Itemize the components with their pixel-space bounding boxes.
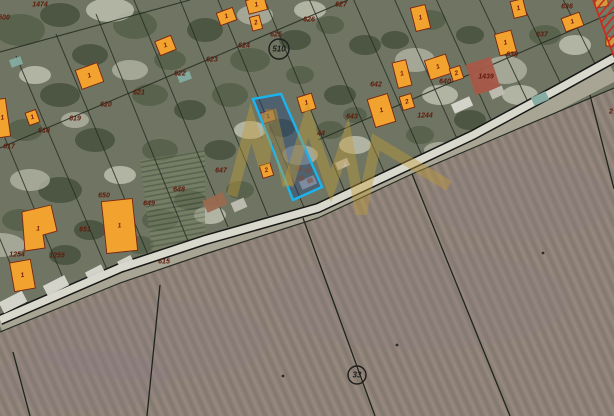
bare-yard-patch	[10, 169, 50, 191]
field-speck	[282, 375, 285, 378]
parcel-number: 617	[3, 144, 16, 151]
parcel-number: 624	[238, 43, 250, 50]
bare-yard-patch	[112, 60, 148, 80]
parcel-number: 647	[215, 168, 228, 175]
cadastral-map-viewport[interactable]: 1111112121121112111111147450061761861962…	[0, 0, 614, 416]
parcel-number: 643	[346, 114, 358, 121]
parcel-number: 625	[270, 32, 282, 39]
tree-blob	[174, 100, 206, 120]
tree-blob	[72, 44, 108, 66]
parcel-number: 623	[206, 57, 218, 64]
field-tint-patch	[270, 250, 570, 350]
parcel-number: 640	[439, 79, 451, 86]
field-tint-patch	[430, 160, 610, 240]
parcel-number: 649	[143, 201, 155, 208]
parcel-number: 2	[608, 109, 613, 116]
parcel-number: 626	[303, 17, 315, 24]
building-highlighted: 1	[101, 199, 137, 254]
tree-blob	[456, 26, 484, 44]
building-number-label: 1	[36, 226, 40, 233]
bare-yard-patch	[104, 166, 136, 184]
parcel-number: 638	[506, 52, 518, 59]
tree-blob	[204, 140, 236, 160]
parcel-number: 637	[536, 32, 549, 39]
parcel-number: 500	[0, 15, 10, 22]
tree-blob	[75, 128, 115, 152]
parcel-number: 622	[174, 71, 186, 78]
tree-blob	[381, 31, 409, 49]
field-speck	[542, 252, 545, 255]
aerial-map-canvas[interactable]: 1111112121121112111111147450061761861962…	[0, 0, 614, 416]
parcel-number: 1244	[417, 113, 433, 120]
tree-blob	[286, 66, 314, 84]
parcel-number: 618	[38, 128, 50, 135]
parcel-number: 1439	[478, 74, 494, 81]
building-highlighted: 1	[10, 259, 36, 291]
tree-blob	[230, 48, 270, 72]
parcel-number: 615	[158, 259, 170, 266]
parcel-number: 620	[100, 102, 112, 109]
bare-yard-patch	[559, 35, 591, 55]
parcel-number: 651	[79, 227, 91, 234]
tree-blob	[212, 83, 248, 107]
survey-number-label: 33	[353, 371, 362, 380]
parcel-number: 1254	[9, 252, 25, 259]
parcel-number: 619	[69, 116, 81, 123]
parcel-number: 1474	[32, 2, 48, 9]
parcel-number: 648	[173, 187, 185, 194]
field-speck	[396, 344, 399, 347]
parcel-number: 621	[133, 90, 145, 97]
parcel-number: 642	[370, 82, 382, 89]
parcel-number: 44	[316, 131, 325, 138]
tree-blob	[40, 83, 80, 107]
parcel-number: 1255	[49, 253, 65, 260]
survey-number-label: 510	[272, 45, 286, 54]
parcel-number: 650	[98, 193, 110, 200]
parcel-number: 636	[561, 4, 573, 11]
parcel-number: 627	[335, 2, 348, 9]
